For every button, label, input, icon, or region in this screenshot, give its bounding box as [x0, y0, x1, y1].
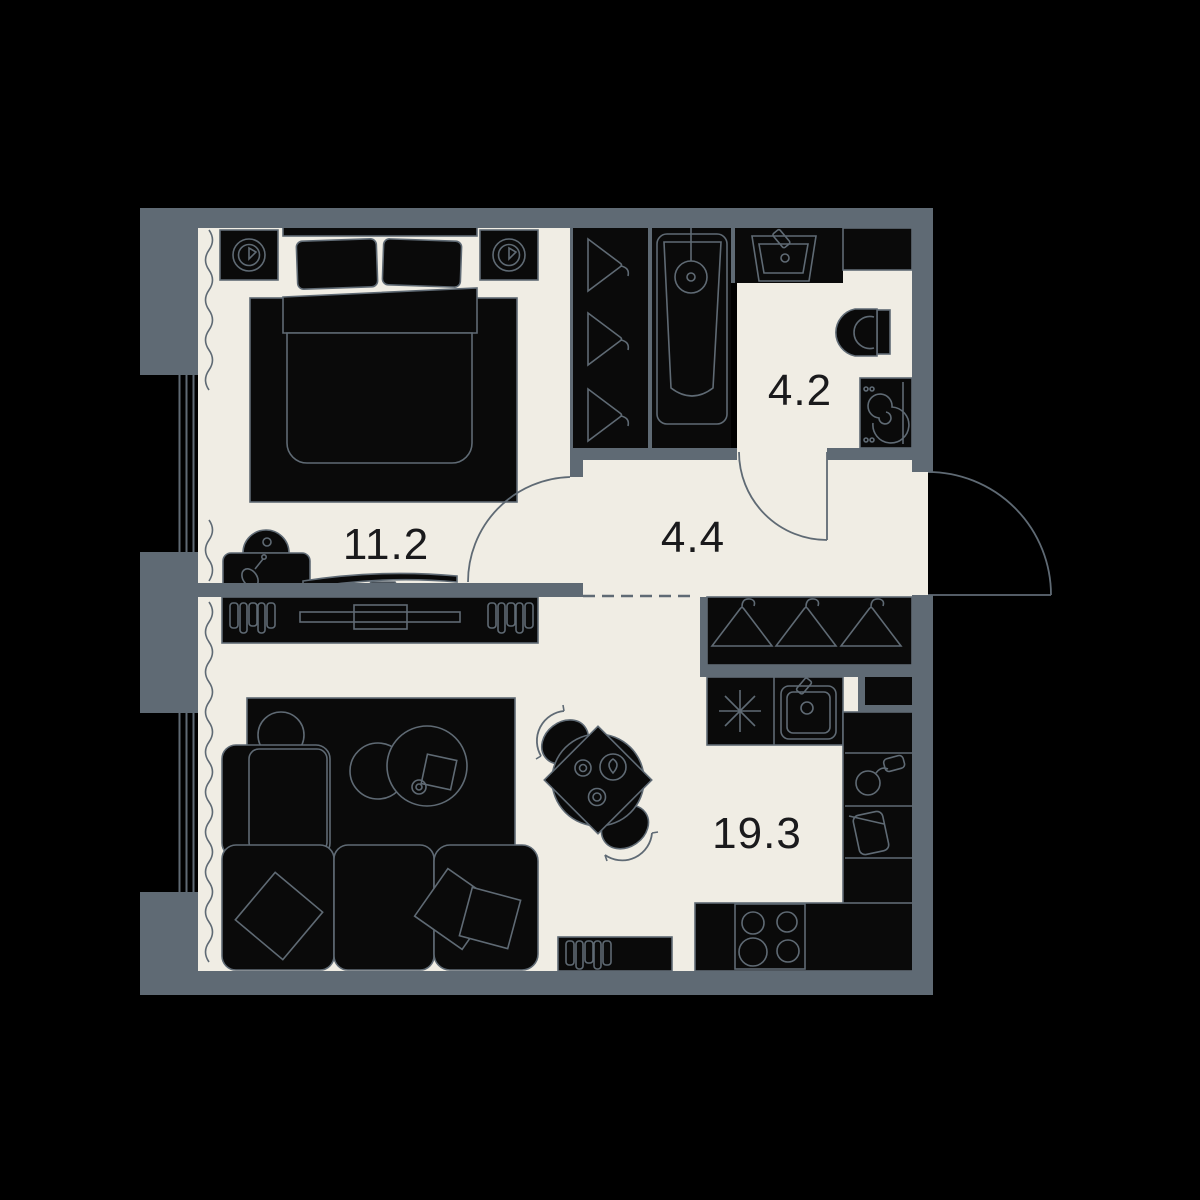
wall-bedroom-south	[198, 583, 583, 597]
hanger-wardrobe	[573, 228, 648, 448]
bottom-counter	[695, 903, 913, 971]
hallway-floor	[583, 460, 912, 597]
washing-machine	[860, 378, 912, 448]
chaise	[222, 745, 330, 857]
duct-niche	[865, 677, 912, 705]
bookshelf	[558, 937, 672, 971]
wall-bathroom-south-left	[570, 448, 737, 460]
floor-plan-canvas: 11.2 4.4 4.2 19.3	[0, 0, 1200, 1200]
mattress	[287, 333, 472, 463]
pillow	[382, 239, 462, 288]
seat	[334, 845, 434, 970]
living-kitchen-area-label: 19.3	[712, 809, 802, 858]
hob-icon	[719, 690, 761, 732]
kitchen-counter	[707, 677, 843, 745]
wall-closet-bottom	[700, 665, 913, 677]
wall-closet-left	[700, 597, 707, 665]
wall-bathroom-south-right	[827, 448, 933, 460]
wall-right-lower	[912, 595, 933, 995]
bedroom-door-gap	[570, 477, 583, 583]
floor-plan: 11.2 4.4 4.2 19.3	[0, 0, 1200, 1200]
bedroom-area-label: 11.2	[343, 520, 429, 569]
wall-left-upper	[140, 208, 198, 375]
partition-bedroom-wardrobe	[570, 228, 573, 448]
wall-left-middle	[140, 552, 198, 713]
partition-wardrobe-tub	[648, 228, 652, 448]
wall-top	[140, 208, 933, 228]
nightstand-left	[220, 230, 278, 280]
nightstand-right	[480, 230, 538, 280]
wall-right-upper	[912, 208, 933, 472]
wall-duct-h	[858, 705, 912, 712]
entrance-reveal	[912, 472, 928, 595]
hanger-closet	[707, 597, 912, 665]
pillow	[296, 239, 378, 290]
wall-bottom	[140, 971, 933, 995]
bathroom-door-gap	[737, 448, 827, 460]
toilet	[836, 309, 890, 356]
bathroom-cabinet	[843, 228, 912, 270]
bathroom-area-label: 4.2	[768, 366, 832, 415]
partition-tub-basin	[731, 228, 735, 283]
media-console	[222, 597, 538, 643]
hallway-area-label: 4.4	[661, 513, 725, 562]
